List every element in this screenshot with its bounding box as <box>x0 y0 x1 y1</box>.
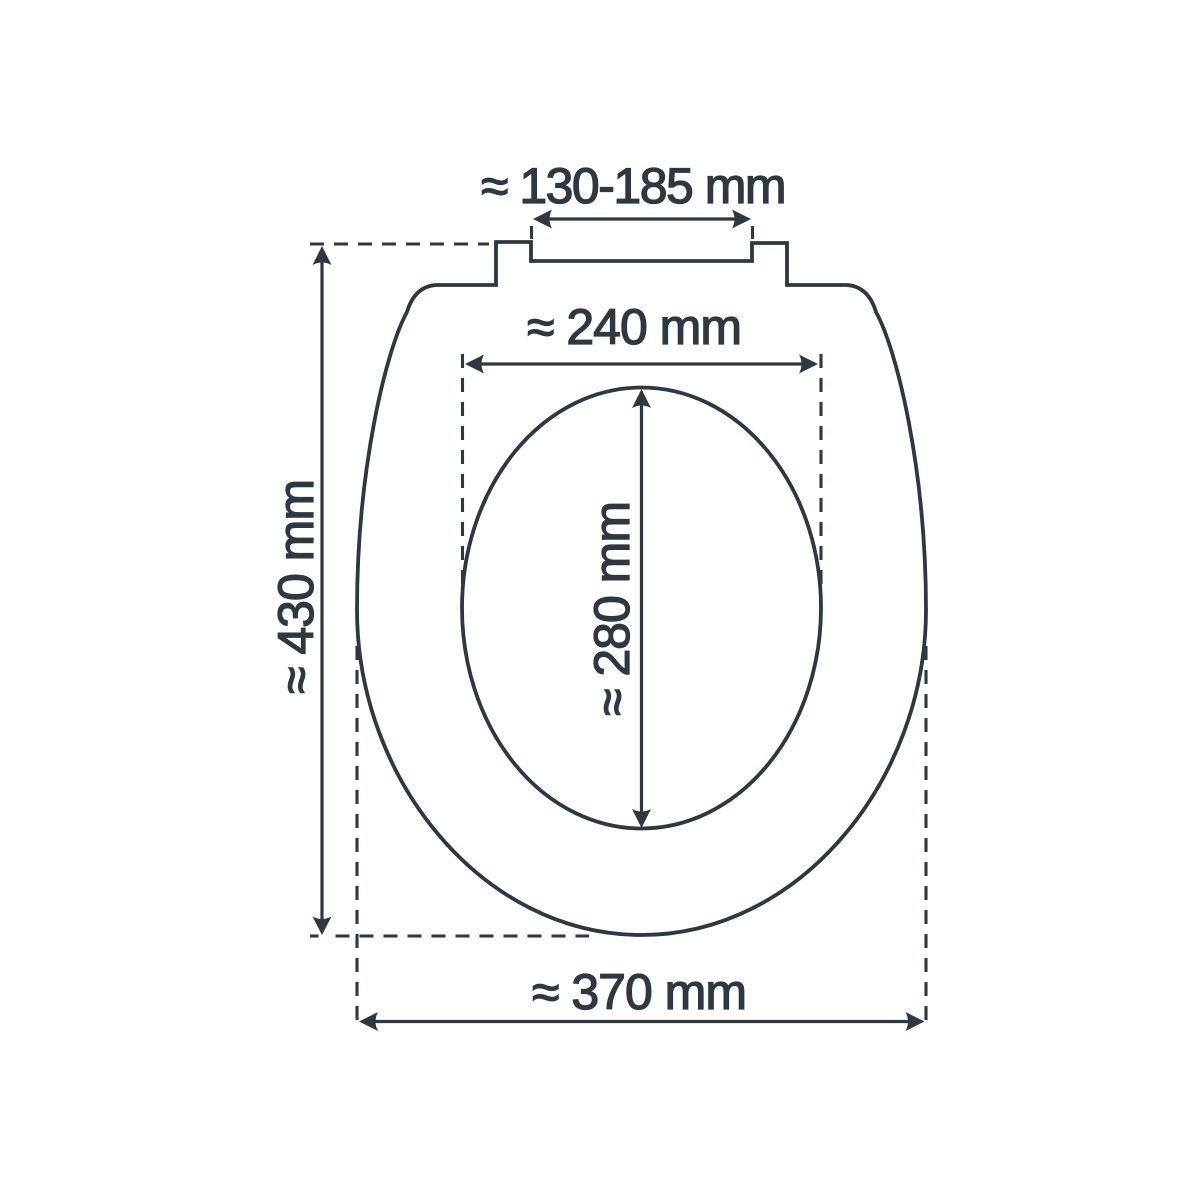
svg-text:≈ 130-185 mm: ≈ 130-185 mm <box>481 158 785 214</box>
svg-text:≈ 430 mm: ≈ 430 mm <box>268 480 324 694</box>
svg-text:≈ 370 mm: ≈ 370 mm <box>532 964 746 1020</box>
svg-text:≈ 280 mm: ≈ 280 mm <box>584 502 640 716</box>
svg-text:≈ 240 mm: ≈ 240 mm <box>527 299 741 355</box>
